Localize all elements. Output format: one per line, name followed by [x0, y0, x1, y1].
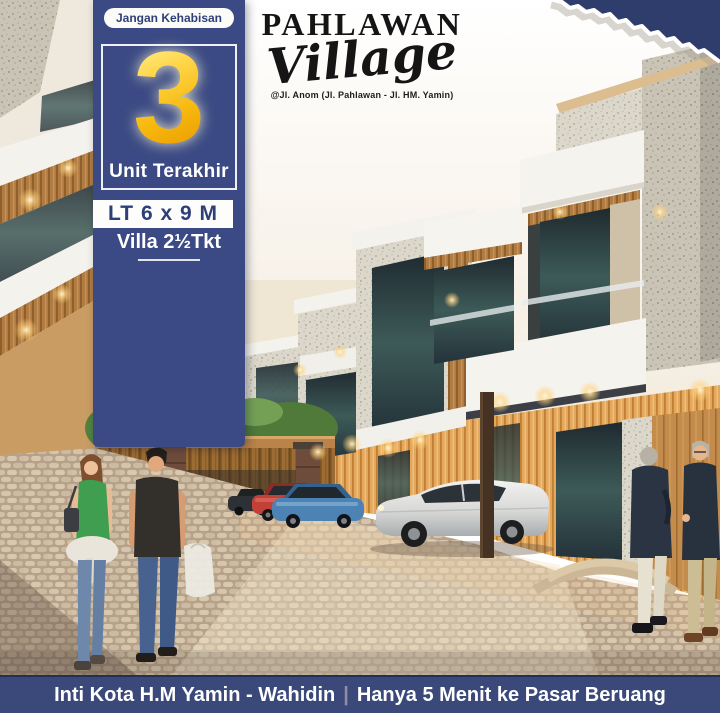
footer-separator: |: [343, 684, 349, 707]
left-building: [0, 0, 95, 462]
porch-column: [480, 392, 494, 558]
footer-location: Inti Kota H.M Yamin - Wahidin: [54, 684, 335, 707]
property-ad-poster: PAHLAWAN Village @Jl. Anom (Jl. Pahlawan…: [0, 0, 720, 713]
torn-corner: [548, 0, 720, 76]
villa-spec: Villa 2½Tkt: [93, 231, 245, 254]
units-caption: Unit Terakhir: [103, 161, 235, 183]
brand-logo: PAHLAWAN Village @Jl. Anom (Jl. Pahlawan…: [248, 8, 476, 100]
footer-bar: Inti Kota H.M Yamin - Wahidin | Hanya 5 …: [0, 675, 720, 713]
panel-divider: [138, 259, 200, 261]
footer-benefit: Hanya 5 Menit ke Pasar Beruang: [357, 684, 666, 707]
units-number: 3: [103, 38, 235, 158]
promo-panel: Jangan Kehabisan 3 Unit Terakhir LT 6 x …: [93, 0, 245, 447]
brand-script: Village: [246, 26, 477, 92]
units-remaining-box: 3 Unit Terakhir: [101, 44, 237, 190]
land-size-band: LT 6 x 9 M: [93, 200, 233, 228]
